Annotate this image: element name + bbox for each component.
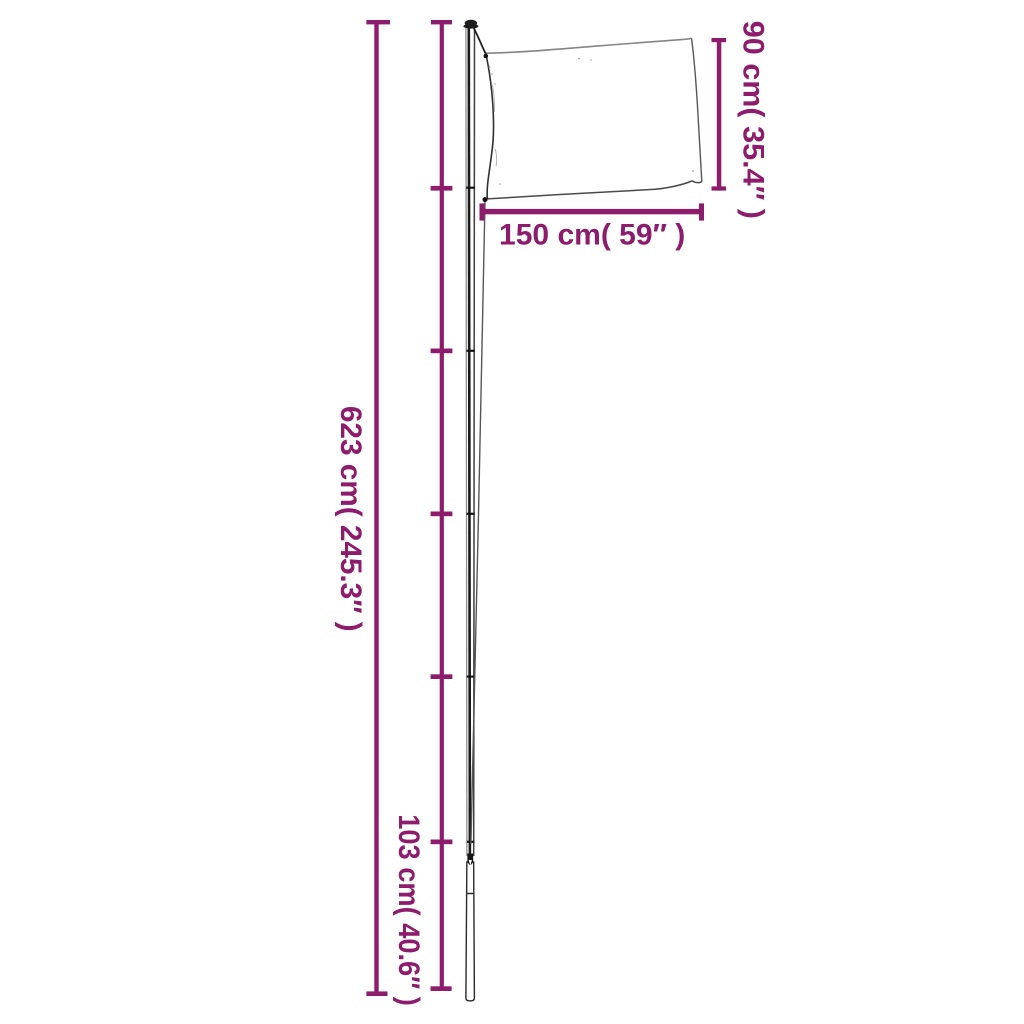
svg-text:623 cm( 245.3″ ): 623 cm( 245.3″ ) — [334, 406, 367, 632]
svg-text:90 cm( 35.4″ ): 90 cm( 35.4″ ) — [736, 21, 769, 219]
svg-text:103 cm( 40.6″ ): 103 cm( 40.6″ ) — [392, 814, 425, 1006]
svg-text:150 cm( 59″ ): 150 cm( 59″ ) — [499, 218, 685, 251]
